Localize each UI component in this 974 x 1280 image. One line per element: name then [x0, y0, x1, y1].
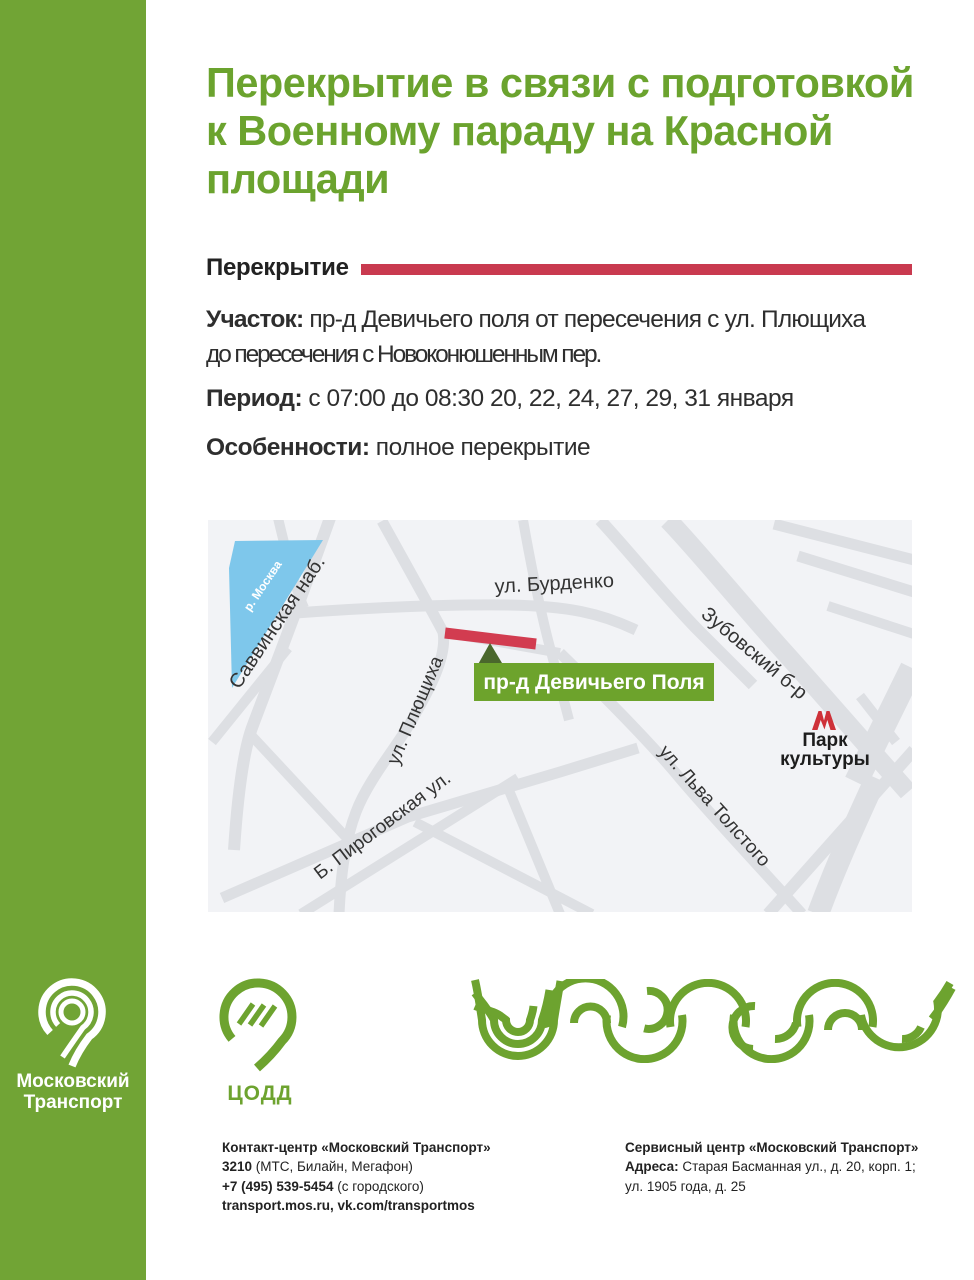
svg-text:культуры: культуры — [780, 749, 870, 770]
svg-text:пр-д Девичьего Поля: пр-д Девичьего Поля — [483, 671, 704, 694]
svg-text:Парк: Парк — [802, 730, 848, 751]
